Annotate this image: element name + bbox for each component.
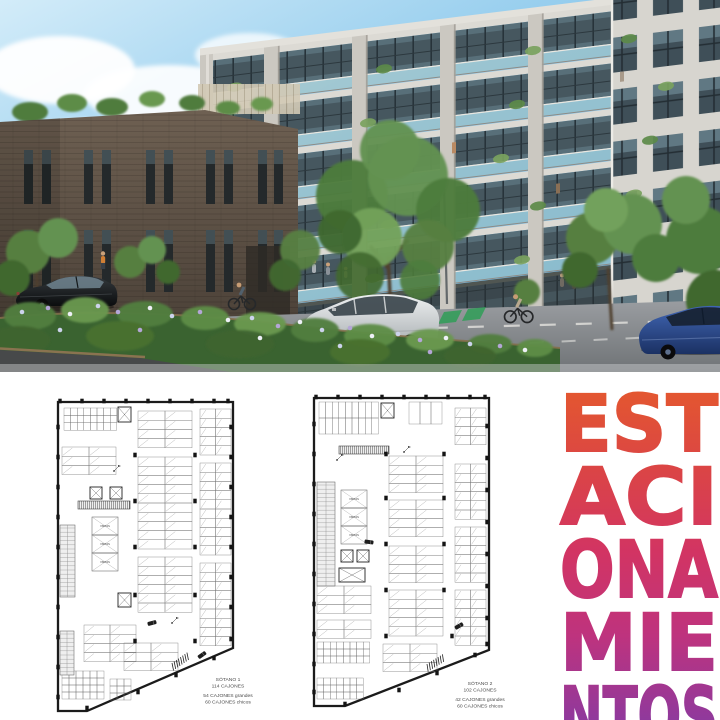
caption-line: 60 CAJONES chicos [433,703,527,710]
svg-text:VISITAS: VISITAS [100,560,110,564]
caption-line: 54 CAJONES grandes [181,692,275,699]
plan-caption-sotano-1: SÓTANO 1 114 CAJONES 54 CAJONES grandes … [181,676,275,705]
svg-text:VISITAS: VISITAS [349,533,359,537]
balcony-person [556,183,560,193]
photo-bottom-fade [0,364,720,372]
svg-text:VISITAS: VISITAS [349,497,359,501]
svg-text:VISITAS: VISITAS [349,515,359,519]
caption-line: SÓTANO 1 [181,676,275,683]
caption-line: SÓTANO 2 [433,680,527,687]
svg-text:VISITAS: VISITAS [100,542,110,546]
svg-text:VISITAS: VISITAS [100,524,110,528]
roof-pergola [198,84,300,114]
caption-line: 114 CAJONES [181,683,275,690]
floor-plan-sotano-1: VISITASVISITASVISITAS [54,397,240,715]
caption-line: 60 CAJONES chicos [181,699,275,706]
render-scene [0,0,720,372]
caption-line: 42 CAJONES grandes [433,696,527,703]
balcony-person [620,71,624,81]
brochure-page: { "title": { "text": "ESTACIONAMIENTOS",… [0,0,720,720]
plan-caption-sotano-2: SÓTANO 2 102 CAJONES 42 CAJONES grandes … [433,680,527,709]
title-line: NTOS [560,672,718,720]
caption-line: 102 CAJONES [433,687,527,694]
balcony-person [452,142,456,153]
estacionamientos-title: EST ACI ONA MIE NTOS [556,384,720,720]
floor-plan-sotano-2: VISITASVISITASVISITAS [309,394,495,712]
building-render-photo [0,0,720,372]
